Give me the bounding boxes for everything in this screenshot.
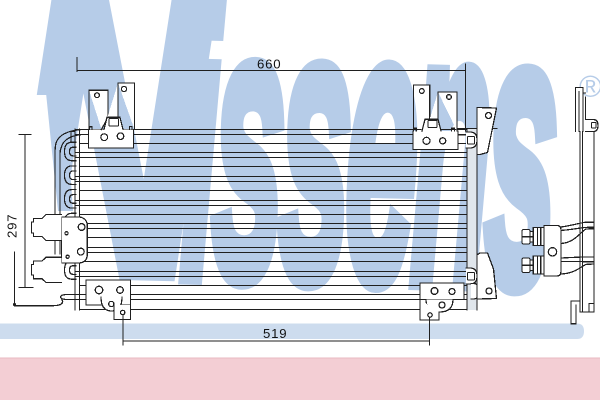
svg-text:297: 297	[5, 214, 20, 238]
svg-text:519: 519	[263, 326, 287, 341]
svg-text:660: 660	[257, 57, 281, 72]
svg-text:issens: issens	[178, 0, 560, 368]
